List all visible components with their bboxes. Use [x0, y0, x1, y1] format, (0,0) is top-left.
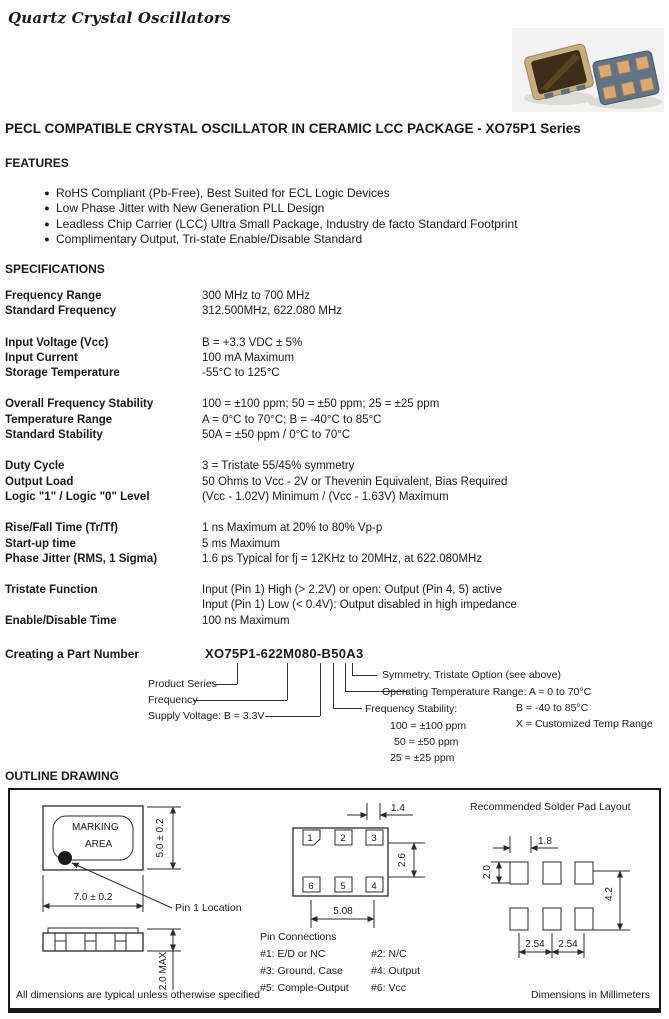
spec-value: 312.500MHz, 622.080 MHz: [202, 304, 660, 319]
spec-label: Enable/Disable Time: [5, 614, 202, 629]
dim-sp-vspan-label: 4.2: [604, 887, 615, 901]
dim-sp-width-label: 1.8: [538, 836, 552, 847]
spec-value: (Vcc - 1.02V) Minimum / (Vcc - 1.63V) Ma…: [202, 490, 660, 505]
pin-connections: Pin Connections #1: E/D or NC #2: N/C #3…: [260, 931, 420, 994]
spec-value: 100 mA Maximum: [202, 351, 660, 366]
spec-label: Standard Frequency: [5, 304, 202, 319]
spec-label: Output Load: [5, 475, 202, 490]
dim-width-label: 7.0 ± 0.2: [74, 892, 113, 903]
footnote-right: Dimensions in Millimeters: [531, 989, 650, 1001]
table-row: Duty Cycle 3 = Tristate 55/45% symmetry: [5, 459, 660, 474]
spec-label: Storage Temperature: [5, 366, 202, 381]
pad-number: 6: [308, 881, 313, 892]
table-row: Overall Frequency Stability 100 = ±100 p…: [5, 397, 660, 412]
spec-label: Input Voltage (Vcc): [5, 336, 202, 351]
spec-value: 300 MHz to 700 MHz: [202, 289, 660, 304]
pn-label-supply-voltage: Supply Voltage: B = 3.3V: [148, 710, 264, 722]
pn-label-stability-100: 100 = ±100 ppm: [390, 720, 466, 732]
spec-label: Frequency Range: [5, 289, 202, 304]
feature-text: Leadless Chip Carrier (LCC) Ultra Small …: [56, 217, 518, 232]
table-row: Temperature Range A = 0°C to 70°C; B = -…: [5, 413, 660, 428]
pn-connector-line: [345, 663, 346, 691]
spec-label: [5, 598, 202, 613]
pin-connection: #4: Output: [371, 965, 420, 977]
pn-label-frequency: Frequency: [148, 694, 198, 706]
outline-drawing-box: MARKING AREA 5.0 ± 0.2 7.0 ± 0.2 Pin 1 L…: [8, 788, 661, 1013]
pn-connector-line: [237, 663, 238, 684]
list-item: ● Complimentary Output, Tri-state Enable…: [38, 232, 638, 247]
spec-label: Tristate Function: [5, 583, 202, 598]
spec-label: Phase Jitter (RMS, 1 Sigma): [5, 552, 202, 567]
package-top-view: MARKING AREA 5.0 ± 0.2 7.0 ± 0.2 Pin 1 L…: [43, 806, 242, 914]
pn-connector-line: [214, 684, 237, 685]
dim-thickness-label: 2.0 MAX: [158, 952, 169, 991]
table-row: Input Current 100 mA Maximum: [5, 351, 660, 366]
bullet-icon: ●: [38, 201, 56, 216]
list-item: ● Low Phase Jitter with New Generation P…: [38, 201, 638, 216]
pin-connection: #1: E/D or NC: [260, 948, 326, 960]
pn-connector-line: [333, 708, 362, 709]
spec-label: Temperature Range: [5, 413, 202, 428]
pin-connection: #5: Comple-Output: [260, 982, 349, 994]
spec-label: Overall Frequency Stability: [5, 397, 202, 412]
pn-connector-line: [265, 716, 320, 717]
pad-number: 3: [371, 833, 376, 844]
spec-label: Input Current: [5, 351, 202, 366]
outline-drawing-heading: OUTLINE DRAWING: [5, 769, 119, 783]
brand-title: Quartz Crystal Oscillators: [8, 9, 231, 27]
datasheet-page: Quartz Crystal Oscillators PECL COMPATIB…: [0, 0, 669, 1019]
bullet-icon: ●: [38, 186, 56, 201]
spec-label: Logic "1" / Logic "0" Level: [5, 490, 202, 505]
spec-value: 50A = ±50 ppm / 0°C to 70°C: [202, 428, 660, 443]
pn-connector-line: [352, 663, 353, 675]
spec-value: 3 = Tristate 55/45% symmetry: [202, 459, 660, 474]
pad-number: 4: [371, 881, 376, 892]
spec-value: 100 = ±100 ppm; 50 = ±50 ppm; 25 = ±25 p…: [202, 397, 660, 412]
spec-label: Duty Cycle: [5, 459, 202, 474]
pin1-dot: [58, 851, 72, 865]
table-row: Input Voltage (Vcc) B = +3.3 VDC ± 5%: [5, 336, 660, 351]
marking-area-label: MARKING: [72, 822, 119, 833]
table-row: Logic "1" / Logic "0" Level (Vcc - 1.02V…: [5, 490, 660, 505]
list-item: ● Leadless Chip Carrier (LCC) Ultra Smal…: [38, 217, 638, 232]
package-bottom-view: 1 2 3 6 5 4 1.4 2.6: [293, 803, 425, 928]
dim-pad-width-label: 1.4: [391, 803, 405, 814]
pad-number: 2: [340, 833, 345, 844]
pin-connections-title: Pin Connections: [260, 931, 336, 943]
pn-label-temp-option-x: X = Customized Temp Range: [516, 718, 653, 730]
spec-value: -55°C to 125°C: [202, 366, 660, 381]
spec-value: 5 ms Maximum: [202, 537, 660, 552]
footnote-left: All dimensions are typical unless otherw…: [16, 989, 260, 1001]
outline-drawing: MARKING AREA 5.0 ± 0.2 7.0 ± 0.2 Pin 1 L…: [10, 790, 655, 1001]
spec-value: 100 ns Maximum: [202, 614, 660, 629]
table-row: Output Load 50 Ohms to Vcc - 2V or Theve…: [5, 475, 660, 490]
spec-label: Standard Stability: [5, 428, 202, 443]
table-row: Enable/Disable Time 100 ns Maximum: [5, 614, 660, 629]
product-photo: [512, 28, 664, 112]
pad-number: 1: [307, 833, 312, 844]
specifications-table: Frequency Range 300 MHz to 700 MHz Stand…: [5, 289, 660, 629]
bullet-icon: ●: [38, 217, 56, 232]
bullet-icon: ●: [38, 232, 56, 247]
features-list: ● RoHS Compliant (Pb-Free), Best Suited …: [38, 186, 638, 248]
table-row: Phase Jitter (RMS, 1 Sigma) 1.6 ps Typic…: [5, 552, 660, 567]
table-row: Standard Stability 50A = ±50 ppm / 0°C t…: [5, 428, 660, 443]
pn-connector-line: [287, 663, 288, 700]
features-heading: FEATURES: [5, 156, 69, 170]
spec-label: Start-up time: [5, 537, 202, 552]
spec-label: Rise/Fall Time (Tr/Tf): [5, 521, 202, 536]
pad-number: 5: [340, 881, 345, 892]
table-row: Input (Pin 1) Low (< 0.4V): Output disab…: [5, 598, 660, 613]
spec-value: B = +3.3 VDC ± 5%: [202, 336, 660, 351]
spec-value: 1.6 ps Typical for fj = 12KHz to 20MHz, …: [202, 552, 660, 567]
dim-height-label: 5.0 ± 0.2: [155, 818, 166, 857]
spec-value: Input (Pin 1) Low (< 0.4V): Output disab…: [202, 598, 660, 613]
dim-sp-pitch-label: 2.54: [525, 939, 545, 950]
table-row: Rise/Fall Time (Tr/Tf) 1 ns Maximum at 2…: [5, 521, 660, 536]
table-row: Start-up time 5 ms Maximum: [5, 537, 660, 552]
specifications-heading: SPECIFICATIONS: [5, 262, 105, 276]
solder-pad-layout: Recommended Solder Pad Layout 1.8 2.0: [470, 801, 631, 958]
dim-sp-pitch-label: 2.54: [558, 939, 578, 950]
table-row: Storage Temperature -55°C to 125°C: [5, 366, 660, 381]
solder-pad-title: Recommended Solder Pad Layout: [470, 801, 631, 813]
pn-connector-line: [333, 663, 334, 708]
feature-text: RoHS Compliant (Pb-Free), Best Suited fo…: [56, 186, 390, 201]
pin-connection: #6: Vcc: [371, 982, 406, 994]
dim-sp-height-label: 2.0: [482, 865, 493, 879]
marking-area-label: AREA: [85, 839, 113, 850]
part-number-value: XO75P1-622M080-B50A3: [205, 646, 363, 661]
pn-connector-line: [193, 700, 287, 701]
pn-connector-line: [320, 663, 321, 716]
part-number-heading: Creating a Part Number: [5, 647, 139, 661]
pn-label-frequency-stability: Frequency Stability:: [365, 703, 457, 715]
table-row: Standard Frequency 312.500MHz, 622.080 M…: [5, 304, 660, 319]
pn-label-operating-temp: Operating Temperature Range: A = 0 to 70…: [382, 686, 591, 698]
pn-label-temp-option-b: B = -40 to 85°C: [516, 702, 588, 714]
table-row: Tristate Function Input (Pin 1) High (> …: [5, 583, 660, 598]
package-side-view: 2.0 MAX: [43, 928, 181, 990]
pin1-location-label: Pin 1 Location: [175, 902, 242, 914]
pn-connector-line: [352, 675, 377, 676]
pin-connection: #2: N/C: [371, 948, 407, 960]
pn-label-symmetry: Symmetry, Tristate Option (see above): [382, 669, 561, 681]
pn-label-stability-50: 50 = ±50 ppm: [394, 736, 458, 748]
spec-value: 1 ns Maximum at 20% to 80% Vp-p: [202, 521, 660, 536]
pin-connection: #3: Ground, Case: [260, 965, 343, 977]
dim-pad-span-label: 5.08: [333, 906, 353, 917]
spec-value: Input (Pin 1) High (> 2.2V) or open: Out…: [202, 583, 660, 598]
feature-text: Low Phase Jitter with New Generation PLL…: [56, 201, 324, 216]
pn-label-product-series: Product Series: [148, 678, 217, 690]
pn-label-stability-25: 25 = ±25 ppm: [390, 752, 454, 764]
list-item: ● RoHS Compliant (Pb-Free), Best Suited …: [38, 186, 638, 201]
table-row: Frequency Range 300 MHz to 700 MHz: [5, 289, 660, 304]
dim-row-gap-label: 2.6: [397, 853, 408, 867]
feature-text: Complimentary Output, Tri-state Enable/D…: [56, 232, 362, 247]
spec-value: A = 0°C to 70°C; B = -40°C to 85°C: [202, 413, 660, 428]
spec-value: 50 Ohms to Vcc - 2V or Thevenin Equivale…: [202, 475, 660, 490]
page-title: PECL COMPATIBLE CRYSTAL OSCILLATOR IN CE…: [5, 121, 581, 136]
